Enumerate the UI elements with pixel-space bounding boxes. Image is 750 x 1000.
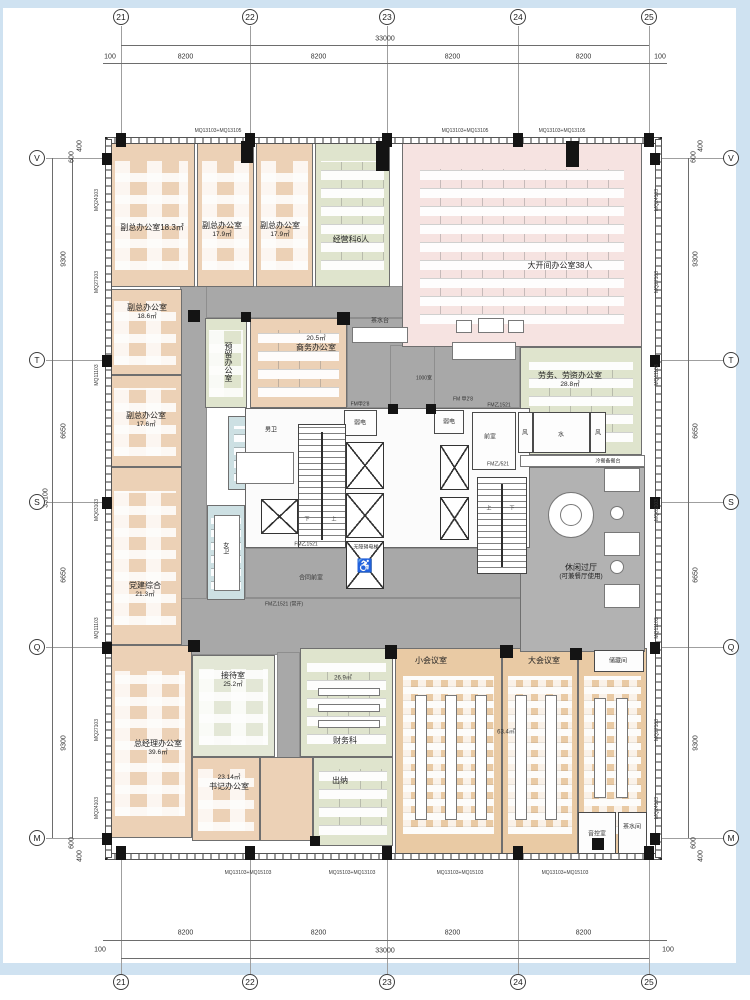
furniture-party-office [114,491,176,625]
label-line: 出纳 [332,776,348,786]
column [650,642,660,654]
label-line: 大开间办公室38人 [528,261,593,271]
round-table [610,506,624,520]
furniture-item [508,320,524,333]
room-party-office [108,467,182,645]
annotation-label: FM乙/521 [487,461,509,468]
room-label-cashier: 出纳 [332,776,348,786]
dim-seg: 9300 [693,251,700,267]
room-secretary-office [192,757,260,841]
label-line: 接待室 [221,671,245,681]
label-line: 20.5㎡ [296,335,336,343]
grid-bubble-V-right: V [723,150,739,166]
grid-bubble-M: M [29,830,45,846]
grid-leader [662,360,724,361]
wall-code: MQ27103 [654,271,660,293]
column [385,645,397,659]
dim-seg: 6650 [61,567,68,583]
label-line: 休闲过厅 [559,563,602,573]
corridor [195,286,403,318]
dim-seg: 9300 [61,735,68,751]
room-secretary-annex [260,757,313,841]
wall-code: MQ27103 [94,271,100,293]
label-line: 副总办公室 [127,303,167,313]
grid-bubble-Q: Q [29,639,45,655]
frame-strip [0,0,750,8]
column [245,846,255,860]
room-label-reception: 接待室25.2㎡ [221,671,245,689]
utility-label: 弱电 [354,418,366,427]
furniture-item [604,532,640,556]
round-table [610,560,624,574]
annotation-label: 下 [509,505,514,512]
furniture-item [520,455,645,467]
grid-bubble-25: 25 [641,9,657,25]
frame-strip [736,8,750,963]
furniture-item [604,468,640,492]
grid-leader [518,860,519,974]
furniture-vice-office-c [261,161,308,270]
grid-bubble-Q-right: Q [723,639,739,655]
utility-label: 储藏间 [609,656,627,665]
annotation-label: FM乙1521 [487,402,510,409]
furniture-item [318,704,380,712]
label-line: 18.6㎡ [127,313,167,321]
furniture-item [515,695,527,820]
dim-line [52,158,53,838]
wall-code: MQ24103 [94,189,100,211]
dim-extra: 600 [69,837,76,849]
dim-line [103,63,667,64]
furniture-item [594,698,606,798]
column [116,133,126,147]
label-line: 党建综合 [129,581,161,591]
room-label-womens-wc: 女卫 [220,542,228,554]
column [102,497,112,509]
column [644,846,654,860]
dim-offset: 100 [662,947,674,954]
dim-line [72,158,73,838]
room-vice-office-a [108,141,195,287]
column [116,846,126,860]
dim-seg: 8200 [445,930,461,937]
column [650,833,660,845]
dim-offset: 100 [104,54,116,61]
grid-leader [649,26,650,137]
grid-leader [121,860,122,974]
dim-total: 33000 [375,948,394,955]
label-line: 副总办公室 [126,411,166,421]
dim-extra: 400 [77,140,84,152]
dim-extra: 600 [691,151,698,163]
elevator-shaft-4 [440,497,469,540]
label-line: 预留办公室 [223,342,233,382]
wall-code: MQ27103 [94,719,100,741]
dim-extra: 400 [77,850,84,862]
label-line: 39.6㎡ [134,749,182,757]
column [376,141,389,171]
grid-bubble-22-bottom: 22 [242,974,258,990]
dim-seg: 8200 [311,54,327,61]
wall-code: MQ11103 [94,617,100,638]
furniture-open-office [420,169,625,324]
room-label-finance-office: 财务科 [333,736,357,746]
dim-seg: 6650 [693,567,700,583]
label-line: 25.2㎡ [221,681,245,689]
dim-offset: 100 [654,54,666,61]
furniture-item [545,695,557,820]
stair-2 [477,477,527,574]
dim-seg: 9300 [693,735,700,751]
room-label-secretary-office: 23.14㎡书记办公室 [209,774,249,792]
room-label-business-section: 经营科6人 [333,235,369,245]
annotation-label: 26.9㎡ [334,673,352,682]
dim-line [121,958,649,959]
grid-leader [250,26,251,137]
dim-seg: 8200 [445,54,461,61]
wall-code: MQ63103 [654,499,660,521]
dim-seg: 8200 [576,930,592,937]
wall-code: MQ13103+MQ15103 [225,870,272,876]
column [513,133,523,147]
grid-bubble-S: S [29,494,45,510]
annotation-label: 1000宽 [416,375,432,382]
room-label-labor-office: 劳务、劳资办公室28.8㎡ [538,371,602,389]
column [102,153,112,165]
furniture-meeting-annex [584,676,642,834]
furniture-item [318,688,380,696]
room-cashier [313,757,393,846]
wall-code: MQ13103+MQ13105 [442,128,489,134]
grid-bubble-M-right: M [723,830,739,846]
label-line: 女卫 [220,542,228,554]
annotation-label: FM甲2'8 [351,401,370,408]
column [426,404,436,414]
annotation-label: 冷餐备餐台 [595,458,620,465]
wall-code: MQ13103+MQ15103 [542,870,589,876]
wall-code: MQ24103 [654,189,660,211]
furniture-item [415,695,427,820]
room-label-vice-office-a: 副总办公室18.3㎡ [120,223,184,233]
dim-extra: 600 [691,837,698,849]
label-line: 财务科 [333,736,357,746]
grid-leader [518,26,519,137]
room-label-gm-office: 总经理办公室39.6㎡ [134,739,182,757]
furniture-item [475,695,487,820]
grid-bubble-T-right: T [723,352,739,368]
room-commerce-office [250,318,347,408]
furniture-item [352,327,408,343]
furniture-vice-office-b [202,161,249,270]
label-line: 28.8㎡ [538,381,602,389]
room-label-mens-wc: 男卫 [265,427,277,435]
room-label-open-office: 大开间办公室38人 [528,261,593,271]
room-label-vice-office-e: 副总办公室17.6㎡ [126,411,166,429]
frame-strip [0,8,3,963]
furniture-vice-office-a [115,161,188,270]
grid-leader [387,26,388,137]
grid-leader [387,860,388,974]
column [382,846,392,860]
dim-line [103,940,667,941]
label-line: 经营科6人 [333,235,369,245]
label-line: 23.14㎡ [209,774,249,782]
grid-leader [46,360,105,361]
column [644,133,654,147]
column [570,648,582,660]
annotation-label: 下 [304,516,309,523]
wall-code: MQ24103 [94,797,100,819]
utility-label: 水 [558,430,564,439]
label-line: 副总办公室 [202,221,242,231]
label-line: 商务办公室 [296,343,336,353]
dim-extra: 400 [698,850,705,862]
grid-bubble-25-bottom: 25 [641,974,657,990]
room-open-office [402,141,642,347]
column [388,404,398,414]
label-line: 小会议室 [415,656,447,666]
room-label-vice-office-b: 副总办公室17.9㎡ [202,221,242,239]
frame-strip [0,963,750,975]
room-vice-office-d [108,289,182,375]
grid-leader [250,860,251,974]
dim-seg: 6650 [61,423,68,439]
dim-offset: 100 [94,947,106,954]
column [337,312,350,325]
utility-label: 茶水间 [623,822,641,831]
furniture-item [236,452,294,484]
dim-seg: 8200 [178,930,194,937]
room-label-party-office: 党建综合21.3㎡ [129,581,161,599]
room-label-vice-office-c: 副总办公室17.9㎡ [260,221,300,239]
grid-leader [46,158,105,159]
room-label-small-meeting: 小会议室 [415,656,447,666]
label-line: 副总办公室 [260,221,300,231]
grid-bubble-V: V [29,150,45,166]
utility-label: 风 [595,428,601,437]
label-line: 总经理办公室 [134,739,182,749]
corridor [277,652,300,760]
label-line: 21.3㎡ [129,591,161,599]
room-label-leisure-hall: 休闲过厅(可兼餐厅使用) [559,563,602,581]
room-label-large-meeting: 大会议室 [528,656,560,666]
room-label-vice-office-d: 副总办公室18.6㎡ [127,303,167,321]
annotation-label: FM乙1521 [294,541,317,548]
furniture-item [456,320,472,333]
wall-code: MQ27103 [654,719,660,741]
utility-room [618,812,647,856]
grid-leader [121,26,122,137]
furniture-item [452,342,516,360]
label-line: 大会议室 [528,656,560,666]
elevator-shaft-5 [261,499,298,534]
annotation-label: 上 [486,505,491,512]
grid-leader [46,647,105,648]
label-line: 17.9㎡ [202,231,242,239]
grid-bubble-24-bottom: 24 [510,974,526,990]
column [592,838,604,850]
wall-code: MQ15103+MQ13103 [329,870,376,876]
furniture-item [478,318,504,333]
grid-bubble-23-bottom: 23 [379,974,395,990]
column [102,833,112,845]
column [500,645,513,658]
dim-line [688,158,689,838]
column [188,310,200,322]
grid-bubble-S-right: S [723,494,739,510]
label-line: 17.6㎡ [126,421,166,429]
grid-leader [46,838,105,839]
dim-extra: 400 [698,140,705,152]
wall-code: MQ11103 [654,364,660,385]
column [241,312,251,322]
annotation-label: 63.4㎡ [497,727,515,736]
column [650,153,660,165]
wall-code: MQ11103 [654,617,660,638]
wall-code: MQ24103 [654,797,660,819]
column [102,642,112,654]
grid-bubble-22: 22 [242,9,258,25]
elevator-shaft-3 [440,445,469,490]
utility-label: 前室 [484,432,496,441]
column [310,836,320,846]
dim-seg: 8200 [576,54,592,61]
column [102,355,112,367]
annotation-label: FM 甲2'8 [453,396,473,403]
room-label-commerce-office: 20.5㎡商务办公室 [296,335,336,353]
grid-bubble-24: 24 [510,9,526,25]
elevator-shaft-2 [346,493,384,538]
annotation-label: 合同前室 [299,573,323,582]
grid-bubble-21-bottom: 21 [113,974,129,990]
floor-plan-canvas: 副总办公室18.3㎡副总办公室17.9㎡副总办公室17.9㎡经营科6人大开间办公… [0,0,750,1000]
furniture-item [445,695,457,820]
room-vice-office-c [256,141,313,287]
utility-label: 弱电 [443,417,455,426]
column [566,141,579,167]
label-line: (可兼餐厅使用) [559,573,602,581]
dim-line [121,45,649,46]
label-line: 17.9㎡ [260,231,300,239]
utility-label: 风 [522,428,528,437]
annotation-label: 上 [331,516,336,523]
grid-leader [662,502,724,503]
elevator-shaft-1 [346,442,384,489]
grid-bubble-23: 23 [379,9,395,25]
wall-code: MQ13103+MQ13105 [195,128,242,134]
furniture-item [604,584,640,608]
dim-seg: 6650 [693,423,700,439]
label-line: 书记办公室 [209,782,249,792]
dim-total: 33000 [375,36,394,43]
dim-seg: 8200 [178,54,194,61]
wheelchair-icon: ♿ [357,559,373,572]
grid-bubble-21: 21 [113,9,129,25]
column [513,846,523,860]
grid-leader [649,860,650,974]
label-line: 劳务、劳资办公室 [538,371,602,381]
wall-code: MQ13103+MQ13105 [539,128,586,134]
label-line: 副总办公室18.3㎡ [120,223,184,233]
column [241,141,253,163]
furniture-business-section [321,161,384,270]
dim-seg: 9300 [61,251,68,267]
furniture-item [616,698,628,798]
annotation-label: 茶水台 [371,316,389,325]
label-line: 男卫 [265,427,277,435]
utility-label: 音控室 [588,829,606,838]
room-large-meeting [502,648,578,858]
wall-code: MQ63103 [94,499,100,521]
furniture-cashier [319,769,386,835]
round-table [560,504,582,526]
annotation-label: FM乙1521 (常开) [265,601,303,608]
room-label-reserved-office: 预留办公室 [223,342,233,382]
annotation-label: 无障碍电梯 [353,544,378,551]
grid-leader [662,647,724,648]
wall-code: MQ13103+MQ15103 [437,870,484,876]
furniture-item [318,720,380,728]
dim-seg: 8200 [311,930,327,937]
wall-code: MQ11103 [94,364,100,385]
dim-extra: 600 [69,151,76,163]
column [188,640,200,652]
stair-1 [298,424,346,548]
grid-bubble-T: T [29,352,45,368]
